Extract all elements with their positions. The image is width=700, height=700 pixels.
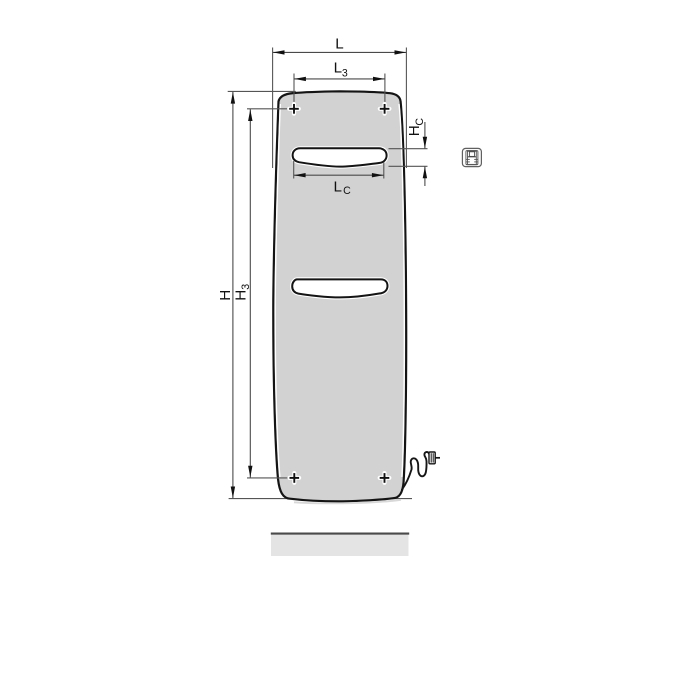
svg-text:3: 3 [342, 68, 348, 80]
svg-text:L: L [333, 179, 341, 196]
svg-text:L: L [335, 36, 343, 53]
svg-text:C: C [343, 185, 351, 197]
svg-text:C: C [414, 118, 426, 126]
svg-text:L: L [334, 60, 342, 77]
svg-text:3: 3 [240, 284, 252, 290]
svg-text:H: H [406, 125, 423, 136]
svg-text:H: H [232, 290, 249, 301]
